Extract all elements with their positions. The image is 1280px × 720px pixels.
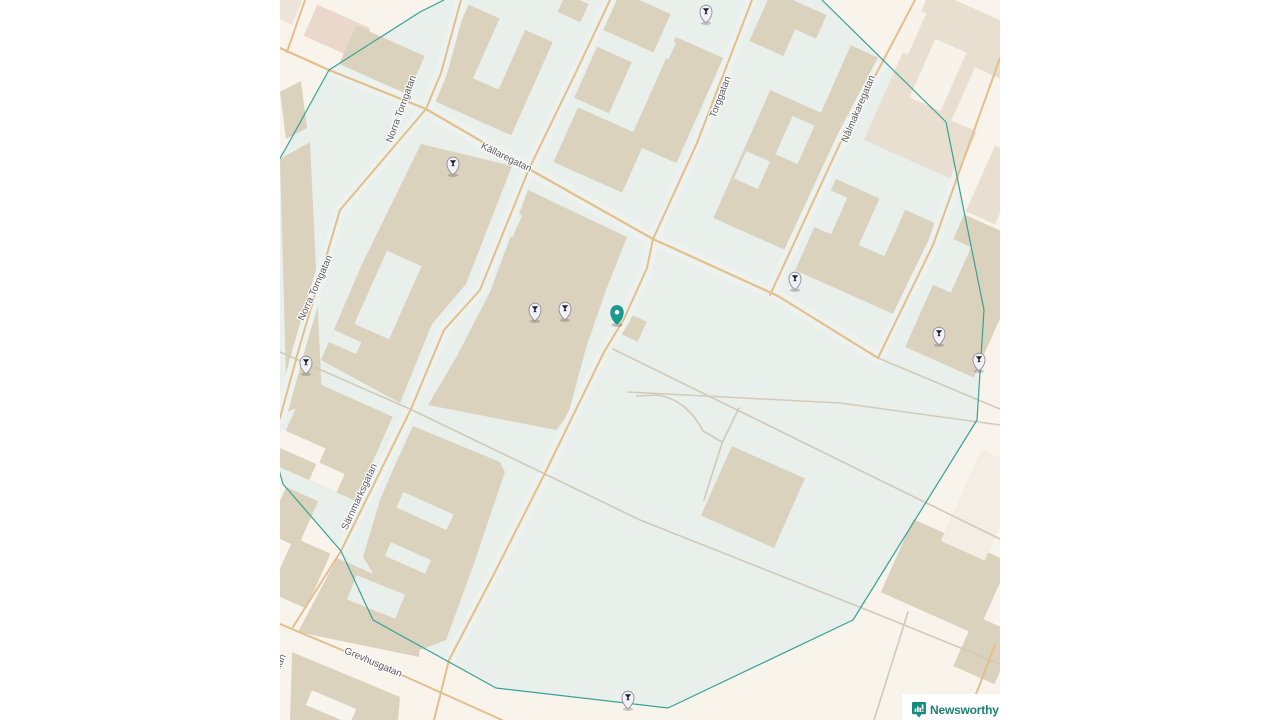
- svg-text:Newsworthy: Newsworthy: [930, 703, 999, 717]
